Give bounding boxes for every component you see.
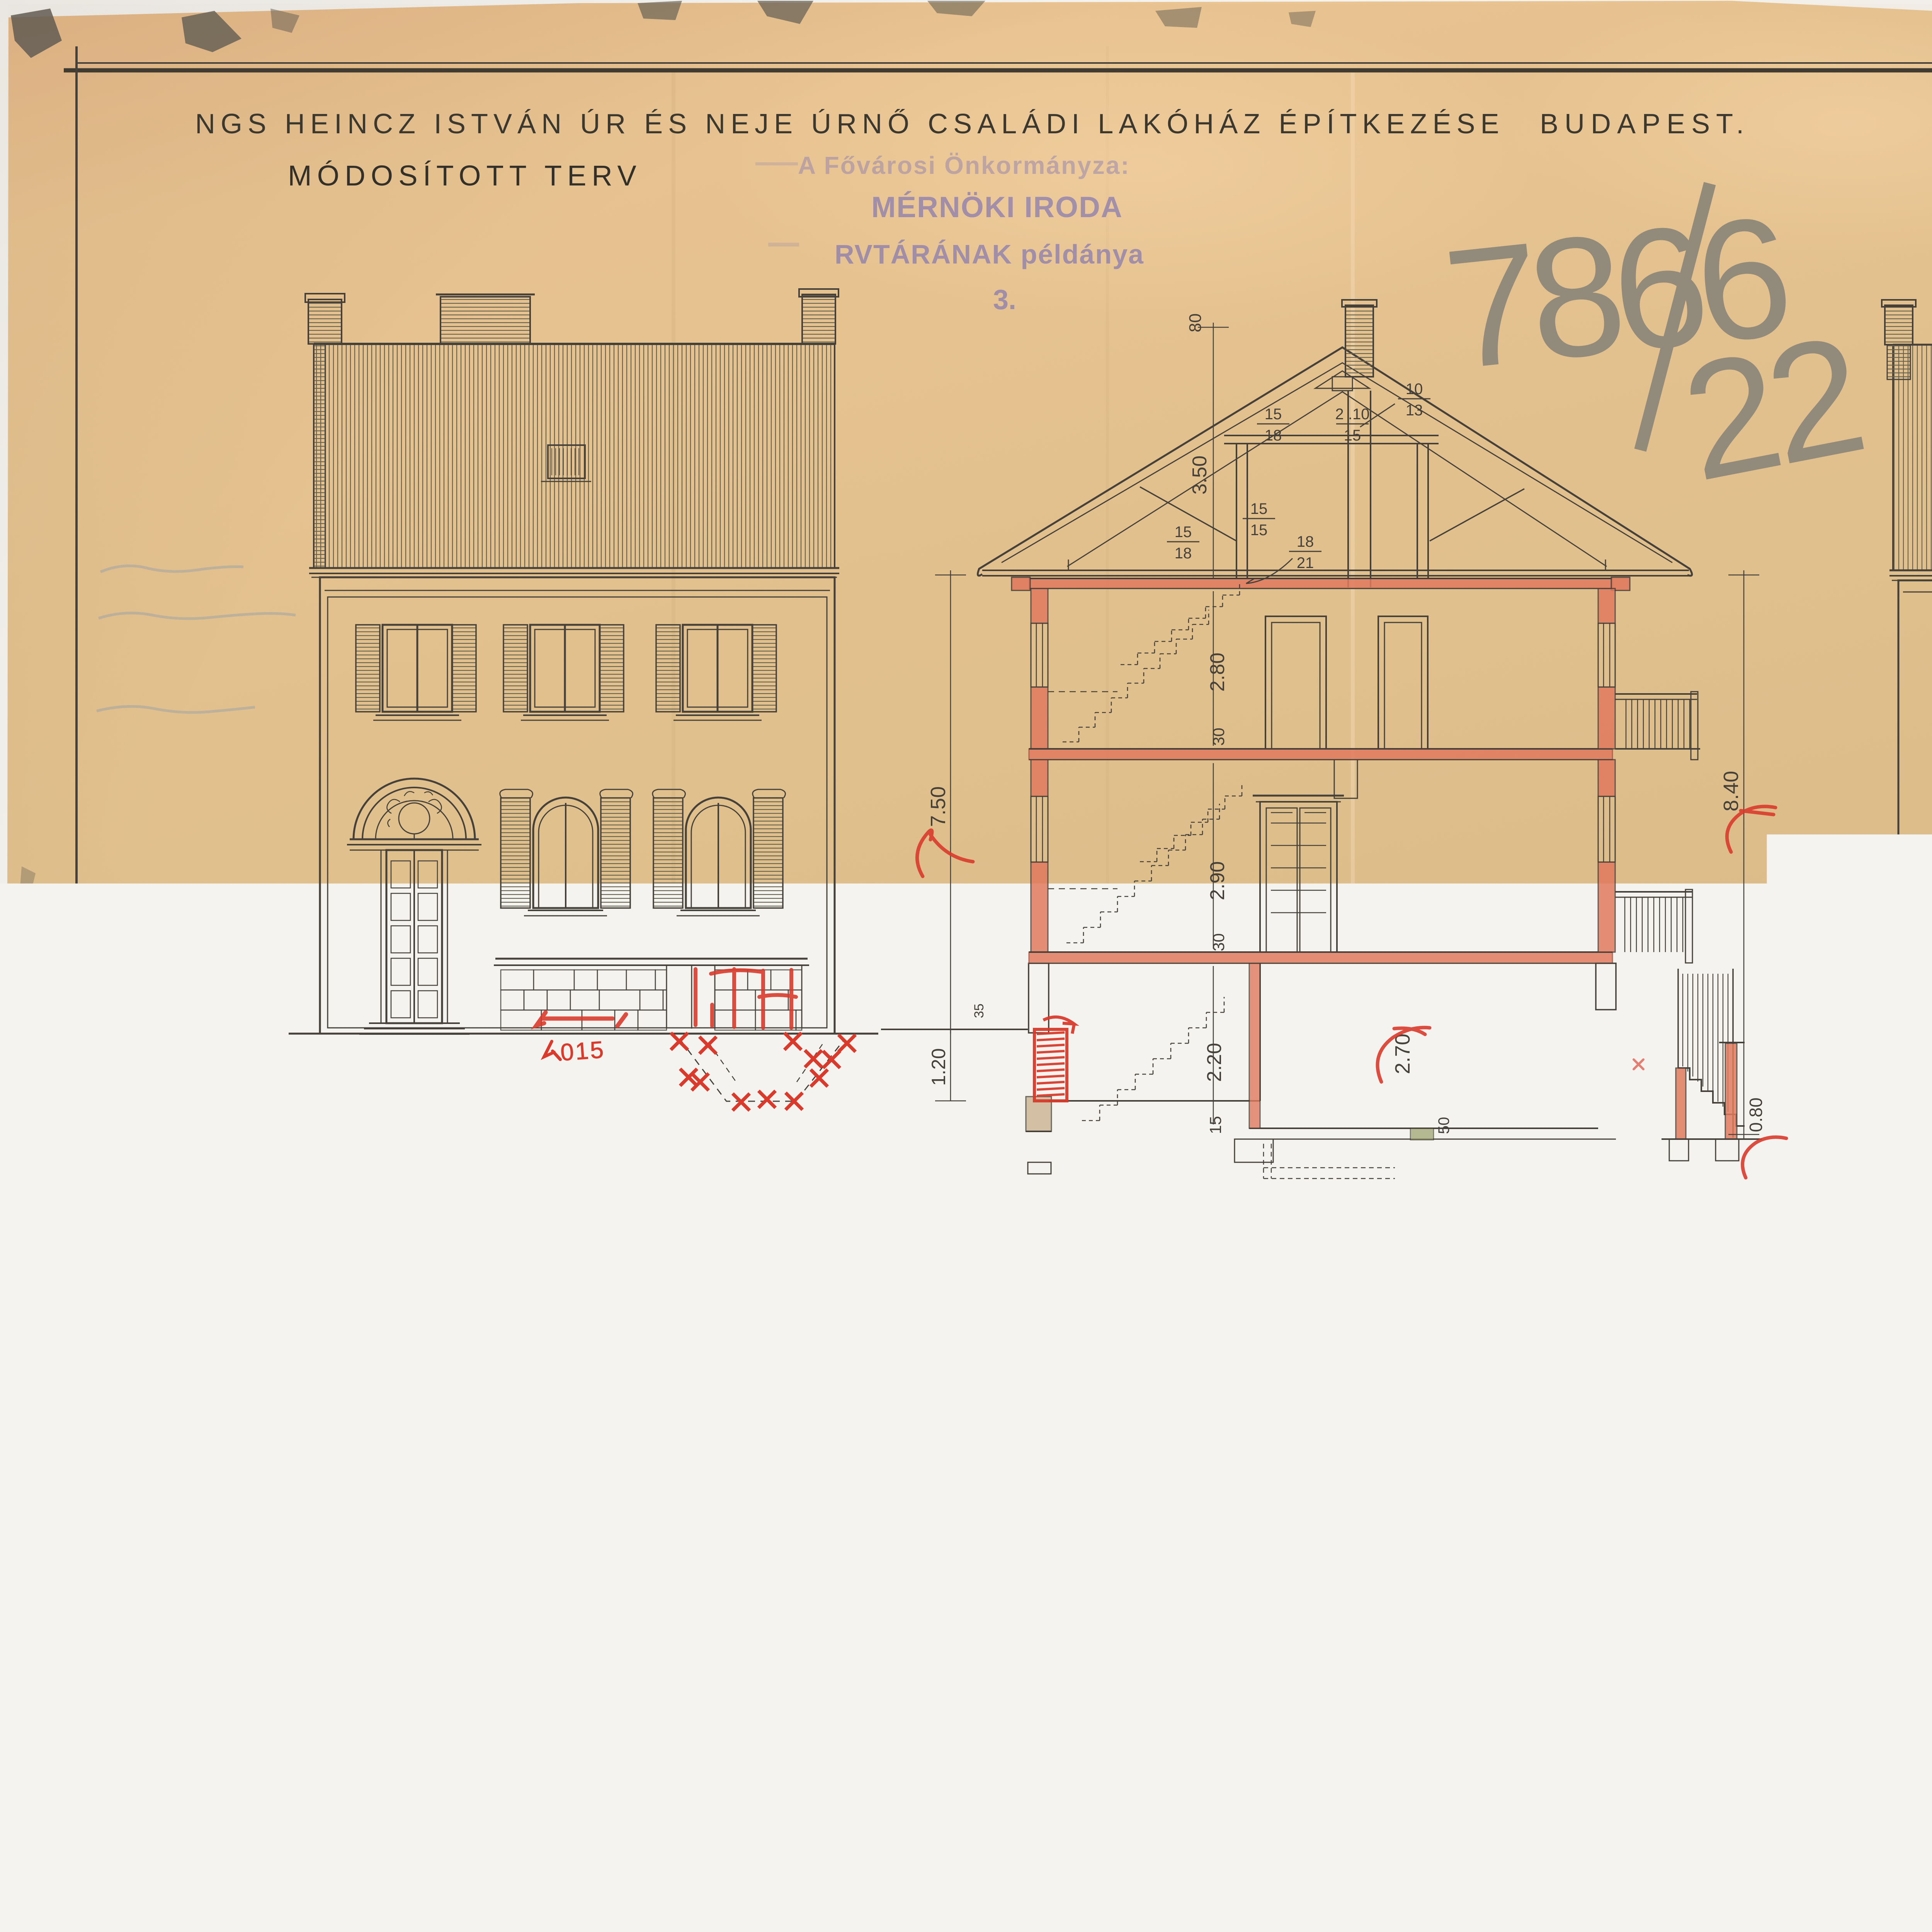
svg-text:35: 35 xyxy=(972,1003,986,1018)
svg-text:ELŐTÉR: ELŐTÉR xyxy=(355,1786,456,1808)
svg-text:MOSÓ K.: MOSÓ K. xyxy=(1917,1587,1932,1607)
svg-text:41: 41 xyxy=(1509,1437,1528,1459)
svg-text:2 . 5 0: 2 . 5 0 xyxy=(1069,1519,1091,1580)
svg-text:A Fővárosi Önkormányza:: A Fővárosi Önkormányza: xyxy=(798,151,1130,179)
svg-text:45: 45 xyxy=(1514,1719,1531,1739)
svg-text:15: 15 xyxy=(1265,406,1282,423)
svg-text:28: 28 xyxy=(1584,1498,1608,1519)
svg-text:GARDR.: GARDR. xyxy=(1131,1661,1211,1680)
svg-text:2.70: 2.70 xyxy=(1391,1034,1414,1074)
svg-text:28: 28 xyxy=(842,1499,866,1521)
svg-text:30: 30 xyxy=(1209,933,1228,951)
svg-text:18: 18 xyxy=(1297,533,1314,550)
svg-text:2.90: 2.90 xyxy=(1206,861,1229,900)
svg-text:15: 15 xyxy=(1206,1116,1225,1134)
svg-text:15: 15 xyxy=(1175,524,1192,541)
svg-text:30: 30 xyxy=(1209,728,1228,746)
svg-text:41: 41 xyxy=(1067,1437,1086,1459)
svg-text:28: 28 xyxy=(1022,1498,1046,1519)
svg-text:2 . 2 0: 2 . 2 0 xyxy=(1069,1878,1091,1932)
svg-text:4 . 3 5: 4 . 3 5 xyxy=(1514,1860,1536,1924)
svg-text:1 5: 1 5 xyxy=(1217,1498,1248,1519)
svg-text:28: 28 xyxy=(277,1499,301,1521)
svg-text:015: 015 xyxy=(560,1036,606,1066)
svg-text:15: 15 xyxy=(1344,427,1361,444)
svg-text:3.: 3. xyxy=(993,284,1016,315)
svg-text:7.50: 7.50 xyxy=(927,786,950,827)
svg-text:50: 50 xyxy=(1435,1117,1452,1134)
svg-text:ELŐTÉR: ELŐTÉR xyxy=(1146,1791,1249,1814)
svg-text:15: 15 xyxy=(1250,500,1268,517)
svg-text:RVTÁRÁNAK példánya: RVTÁRÁNAK példánya xyxy=(835,239,1144,269)
svg-text:MOLY.: MOLY. xyxy=(1090,1656,1105,1700)
svg-text:4 . 3 0: 4 . 3 0 xyxy=(740,1551,763,1615)
svg-text:4 . 8 2: 4 . 8 2 xyxy=(649,1499,713,1521)
svg-text:4 . 3 5: 4 . 3 5 xyxy=(740,1868,763,1932)
svg-text:KONYHA: KONYHA xyxy=(417,1549,511,1569)
svg-text:MÓDOSÍTOTT TERV: MÓDOSÍTOTT TERV xyxy=(288,160,642,192)
svg-text:4 . 3 0: 4 . 3 0 xyxy=(1514,1582,1536,1646)
svg-text:18: 18 xyxy=(1265,427,1282,444)
svg-text:2 . 1 0: 2 . 1 0 xyxy=(433,1499,497,1521)
svg-text:8: 8 xyxy=(1071,1623,1088,1633)
svg-text:2 .10: 2 .10 xyxy=(1335,406,1370,423)
svg-text:28: 28 xyxy=(1857,1495,1881,1517)
svg-text:1 0 . 0 0: 1 0 . 0 0 xyxy=(859,1706,882,1789)
svg-text:0 . 1 5: 0 . 1 5 xyxy=(540,1499,604,1521)
svg-text:NGS HEINCZ ISTVÁN ÚR ÉS NE: NGS HEINCZ ISTVÁN ÚR ÉS NEJE ÚRNŐ CSALÁD… xyxy=(195,109,1505,139)
svg-text:9 0: 9 0 xyxy=(337,1499,367,1521)
svg-text:1 . 7 5: 1 . 7 5 xyxy=(1069,1658,1091,1719)
svg-text:5 . 4 0: 5 . 4 0 xyxy=(1368,1497,1434,1520)
svg-text:GYERMEK SZ.: GYERMEK SZ. xyxy=(1376,1810,1542,1831)
svg-text:1.20: 1.20 xyxy=(928,1048,949,1086)
svg-text:80: 80 xyxy=(1186,313,1205,332)
svg-text:3.50: 3.50 xyxy=(1189,456,1211,495)
svg-text:MÉRNÖKI IRODA: MÉRNÖKI IRODA xyxy=(871,191,1123,224)
svg-text:13: 13 xyxy=(1406,402,1423,419)
svg-text:53: 53 xyxy=(744,1763,764,1785)
svg-text:H A L L: H A L L xyxy=(608,1748,633,1828)
svg-text:1 . 6 0: 1 . 6 0 xyxy=(1069,1762,1091,1824)
svg-text:HÁLÓ SZ: HÁLÓ SZ xyxy=(1329,1580,1442,1602)
svg-text:8: 8 xyxy=(1514,1753,1529,1762)
svg-text:2.80: 2.80 xyxy=(1206,653,1229,692)
svg-text:2 . 5 0: 2 . 5 0 xyxy=(1117,1497,1181,1520)
svg-text:2.20: 2.20 xyxy=(1203,1043,1226,1082)
svg-text:CSELÉD SZ.: CSELÉD SZ. xyxy=(1213,1905,1352,1925)
svg-text:15: 15 xyxy=(1250,522,1268,539)
svg-text:10: 10 xyxy=(1406,381,1423,398)
svg-text:8: 8 xyxy=(395,1499,407,1521)
svg-text:0.80: 0.80 xyxy=(1746,1097,1766,1132)
svg-text:22: 22 xyxy=(1670,301,1872,516)
svg-text:BUDAPEST.: BUDAPEST. xyxy=(1540,109,1750,139)
svg-text:21: 21 xyxy=(1297,554,1314,571)
svg-text:8.40: 8.40 xyxy=(1719,771,1743,811)
svg-text:18: 18 xyxy=(1175,545,1192,562)
